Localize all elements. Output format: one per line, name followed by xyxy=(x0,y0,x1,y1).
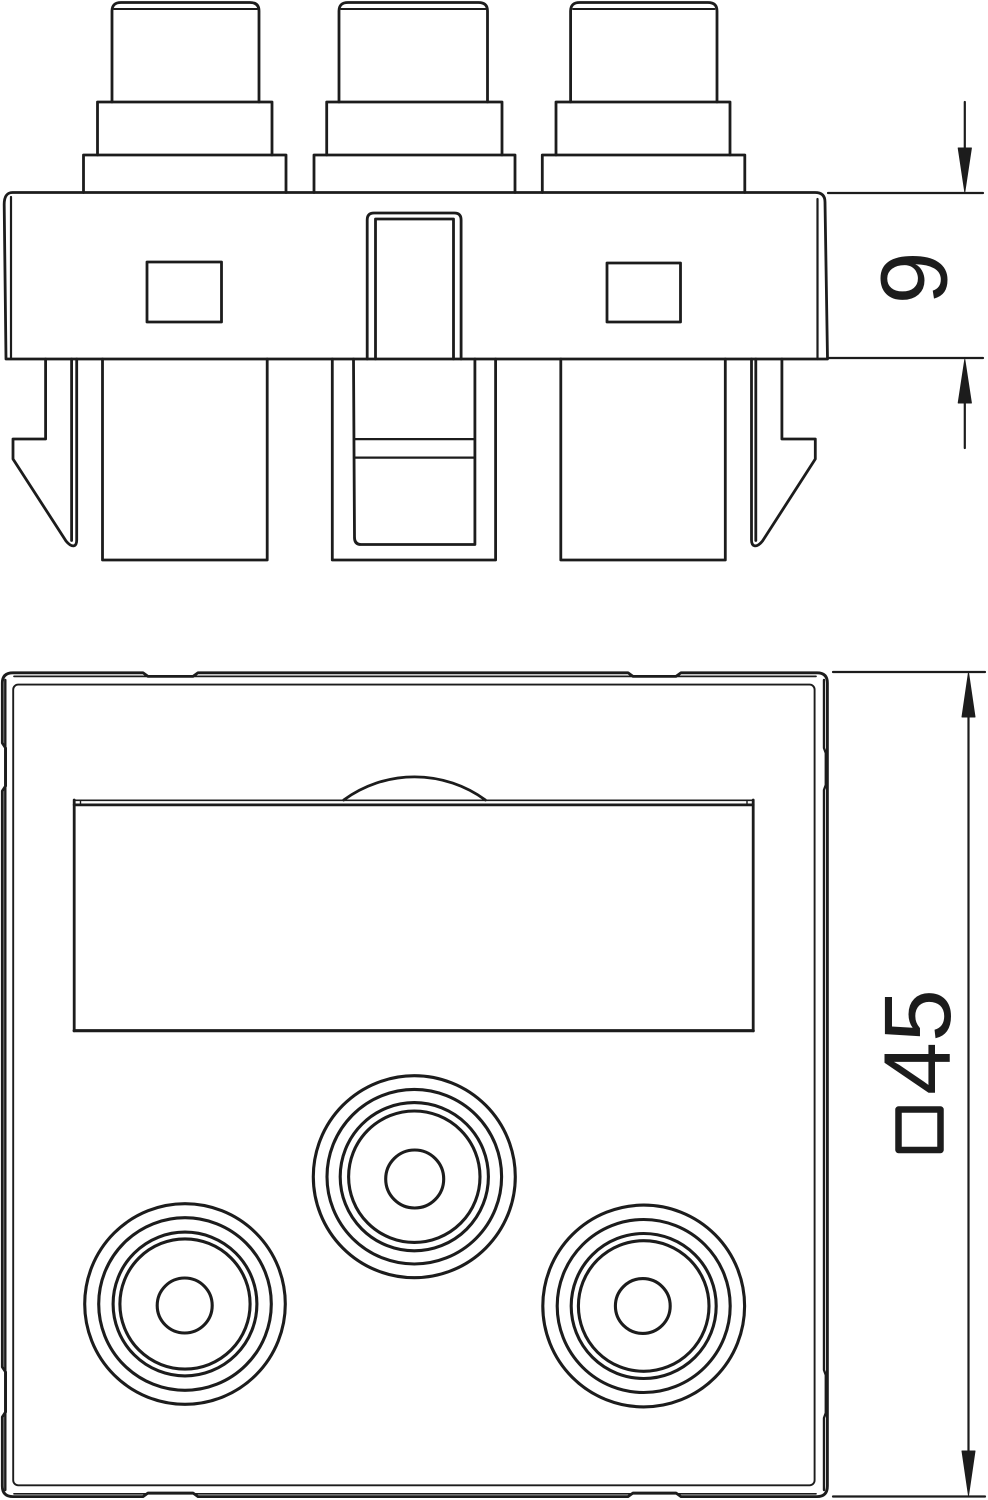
svg-text:9: 9 xyxy=(862,252,968,305)
svg-text:45: 45 xyxy=(865,989,971,1095)
